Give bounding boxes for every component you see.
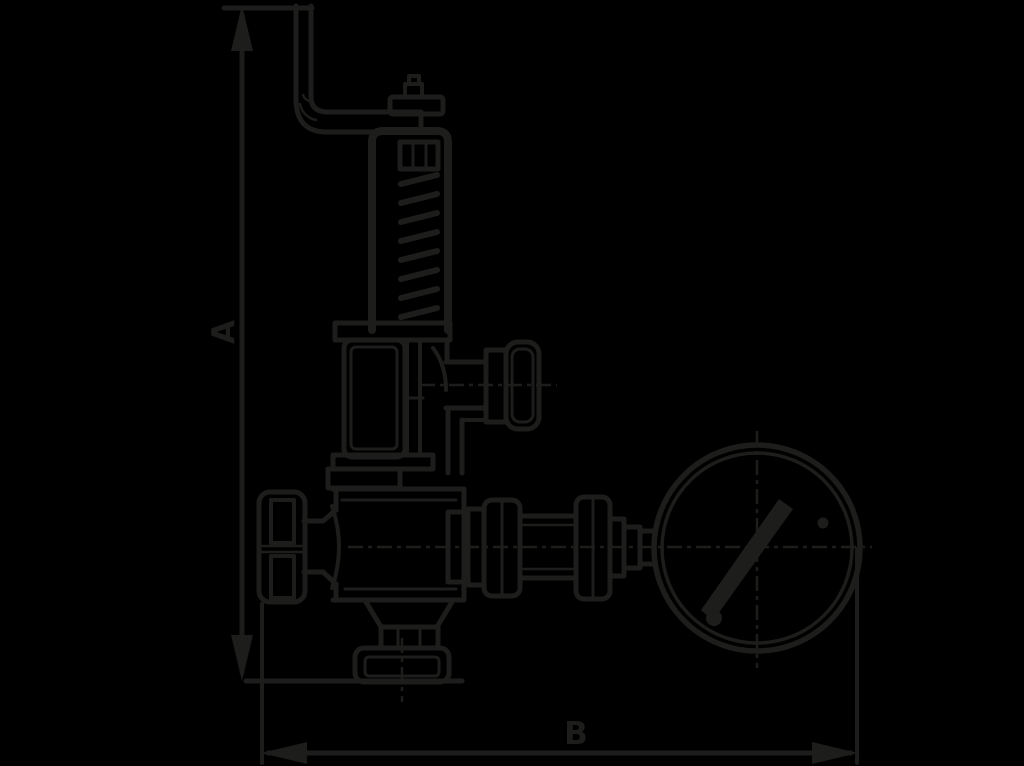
lever-bend-hatch-2 [303,95,309,101]
spring-bonnet-yoke [335,131,450,340]
handwheel-inner-bottom [271,556,294,598]
handwheel-inner-top [271,500,294,543]
gauge-dial-dot [818,518,829,529]
spindle-nut-facets [413,142,426,169]
bonnet-flange-plates [328,455,433,488]
dimension-b-arrow-right-icon [812,742,858,764]
inlet-neck [381,627,438,648]
relief-valve [259,6,655,682]
outlet-bell-curve [433,348,446,390]
handwheel-band-lines [261,546,303,552]
gauge-needle-pivot-dot [706,610,722,626]
body-bulge-arc [332,506,339,588]
spring-housing [344,340,423,457]
spindle-nut [400,142,438,169]
valve-technical-drawing: A B [0,0,1024,766]
gauge-needle [701,499,793,621]
spring-seat-plate [335,323,450,340]
pressure-gauge [654,445,860,651]
spring-coils [401,175,437,317]
dimension-a-arrow-down-icon [231,635,253,681]
spindle-cap [390,76,443,114]
inlet-flange [355,648,449,682]
dimension-a-label: A [206,320,242,344]
side-handwheel-cap [259,492,323,602]
dimension-b: B [261,549,858,764]
valve-body [323,489,464,648]
plate-lower [328,469,400,488]
housing-inner [351,347,397,449]
dimension-b-arrow-left-icon [261,742,307,764]
body-top-bottom [333,489,464,600]
body-inner-lines [342,500,456,589]
outlet-downpipe [448,408,462,473]
outlet-port [421,340,539,473]
inlet-cone [366,602,452,627]
dimension-b-label: B [564,716,588,752]
drawing-canvas: A B [0,0,1024,766]
dimension-a-arrow-up-icon [231,5,253,51]
